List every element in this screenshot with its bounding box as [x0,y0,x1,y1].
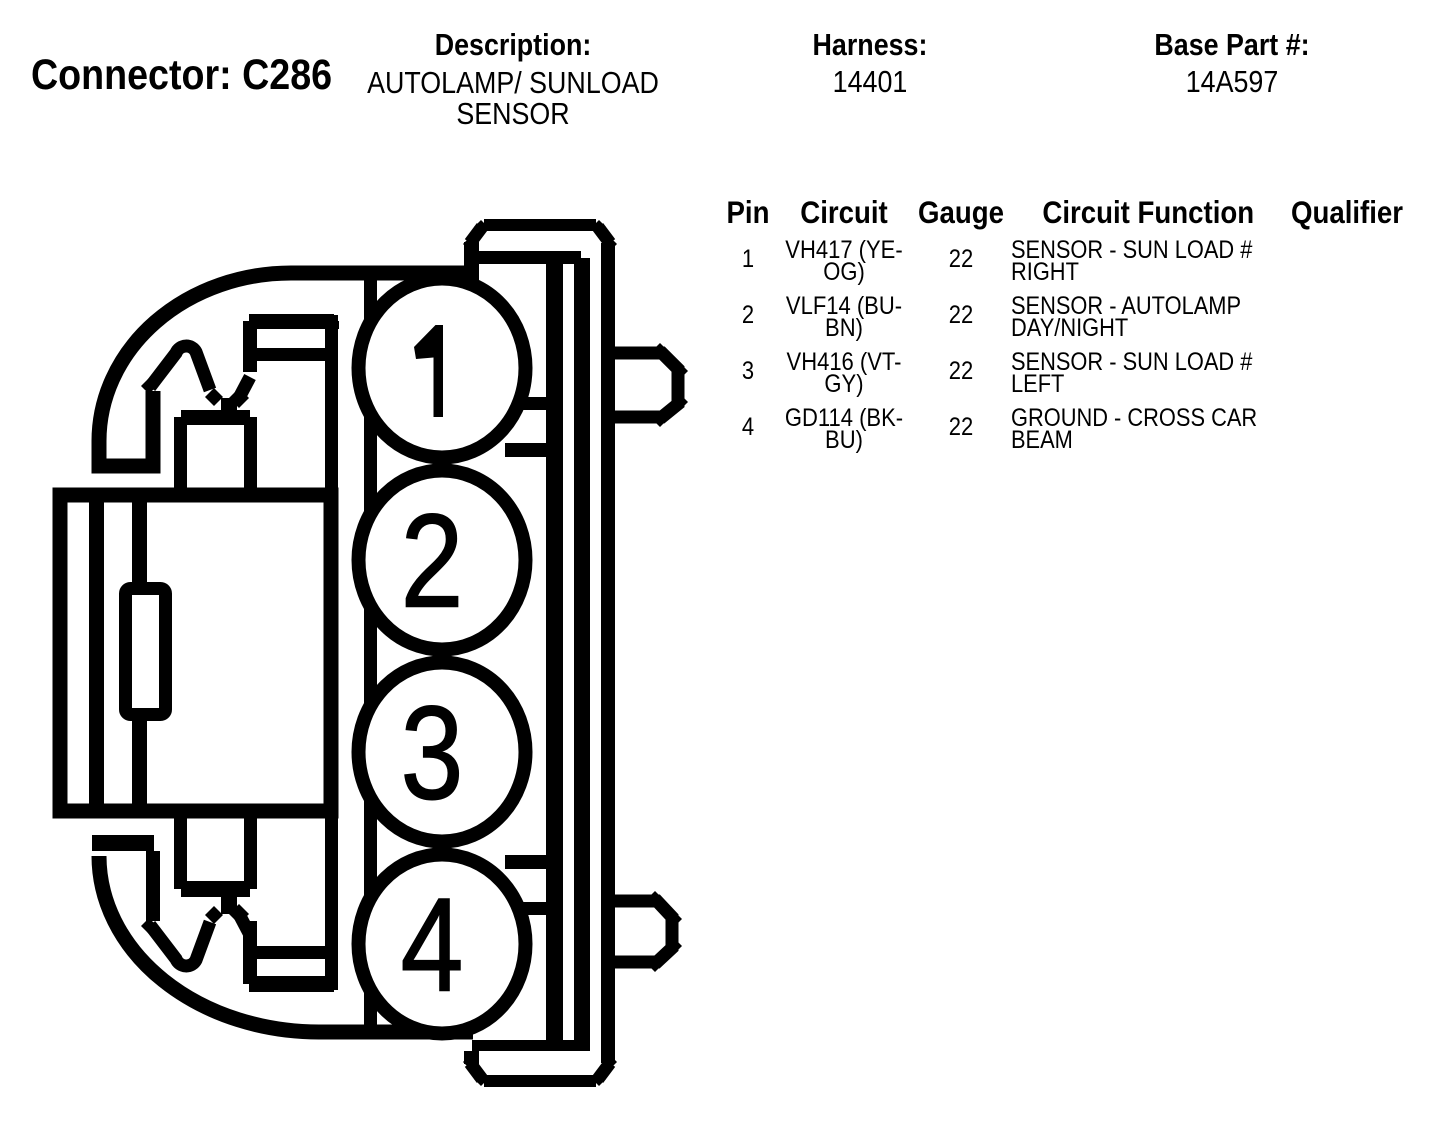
svg-text:2: 2 [401,487,464,636]
svg-text:3: 3 [401,679,464,828]
svg-text:4: 4 [401,871,464,1020]
